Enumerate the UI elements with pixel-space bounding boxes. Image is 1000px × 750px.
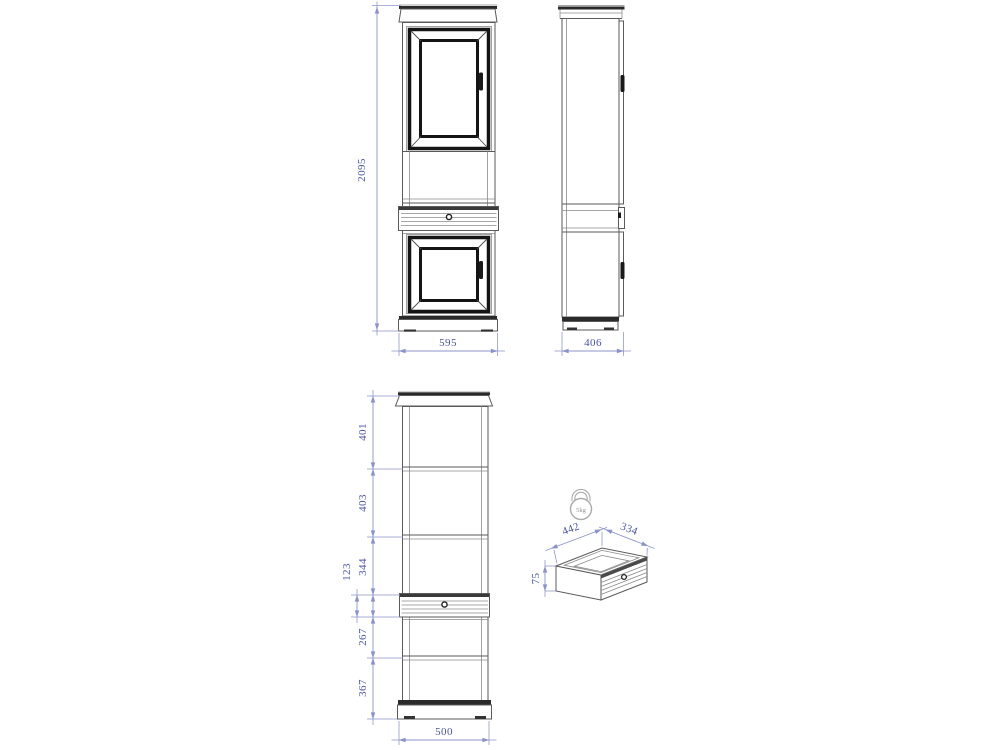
page-background xyxy=(0,0,1000,750)
section-segment-label-344: 344 xyxy=(357,558,369,576)
cabinet-technical-drawing: 2095 595 xyxy=(0,0,1000,750)
foot xyxy=(404,716,415,719)
foot xyxy=(567,328,577,331)
cornice-molding xyxy=(399,9,497,22)
side-bottom-door-handle xyxy=(621,262,625,279)
section-width-label: 500 xyxy=(435,726,453,738)
top-door-inner-frame xyxy=(421,41,478,137)
drawer-height-label: 75 xyxy=(530,573,542,585)
foot xyxy=(604,328,614,331)
plinth-band xyxy=(399,316,497,320)
section-segment-label-401: 401 xyxy=(357,423,369,441)
side-top-door-handle xyxy=(621,75,625,92)
drawer-knob xyxy=(442,602,447,607)
side-top-door-edge xyxy=(619,21,624,204)
side-plinth-band xyxy=(562,317,619,322)
section-segment-label-123: 123 xyxy=(341,563,353,581)
foot xyxy=(404,330,416,332)
section-segment-label-367: 367 xyxy=(357,679,369,697)
side-carcass xyxy=(562,19,619,318)
side-view: 406 xyxy=(555,6,632,357)
plinth-band xyxy=(398,700,491,705)
technical-drawing-page: 2095 595 xyxy=(0,0,1000,750)
cap-band xyxy=(558,7,625,10)
front-top-door xyxy=(407,27,492,152)
foot xyxy=(481,330,493,332)
section-segment-label-403: 403 xyxy=(357,494,369,512)
cornice-band xyxy=(398,393,490,396)
section-segment-label-267: 267 xyxy=(357,628,369,646)
plinth xyxy=(399,320,498,332)
bottom-door-handle xyxy=(479,261,483,279)
top-door-handle xyxy=(479,73,483,91)
front-width-label: 595 xyxy=(439,337,457,349)
max-load-label: 5kg xyxy=(576,507,587,514)
cornice-molding xyxy=(396,396,493,407)
front-bottom-door xyxy=(407,235,492,314)
side-width-label: 406 xyxy=(584,337,602,349)
side-drawer-knob xyxy=(618,213,621,219)
drawer-knob xyxy=(446,214,451,219)
bottom-door-inner-frame xyxy=(421,249,478,301)
front-height-label: 2095 xyxy=(356,158,368,182)
front-drawer xyxy=(399,207,499,231)
section-drawer xyxy=(400,594,490,618)
drawer-knob xyxy=(622,575,627,580)
drawer-top-band xyxy=(399,207,498,210)
foot xyxy=(475,716,486,719)
drawer-top-band xyxy=(400,594,489,597)
